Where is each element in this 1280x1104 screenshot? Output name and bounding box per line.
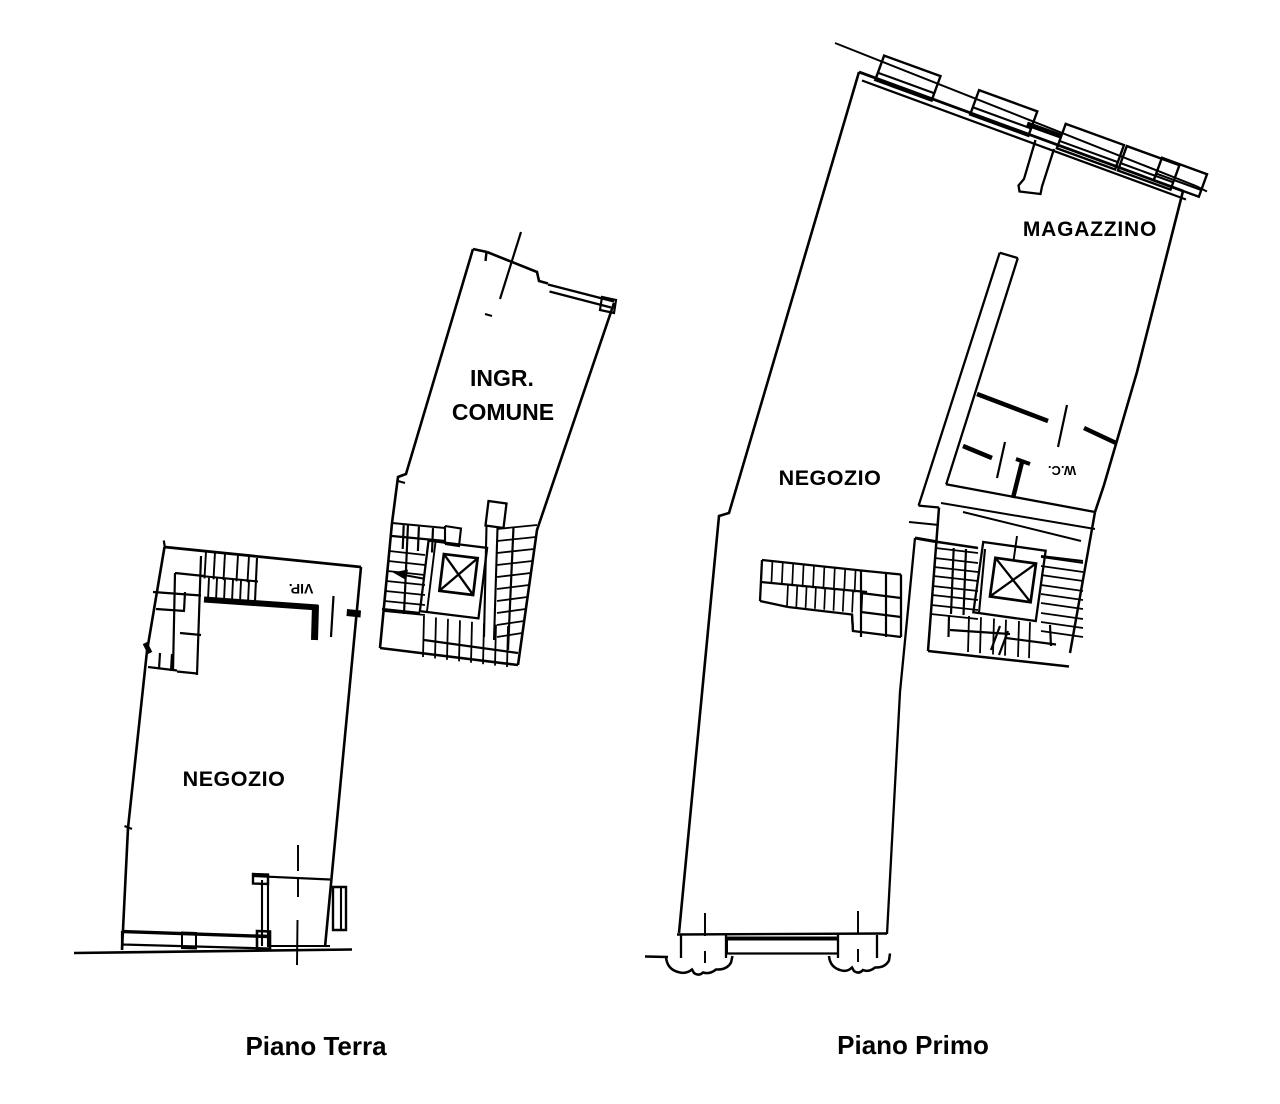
svg-text:W.C.: W.C. (1048, 463, 1076, 478)
svg-text:COMUNE: COMUNE (452, 399, 554, 425)
svg-text:INGR.: INGR. (470, 365, 534, 391)
svg-text:Piano Terra: Piano Terra (245, 1031, 387, 1061)
svg-text:VIP.: VIP. (289, 581, 314, 597)
svg-text:NEGOZIO: NEGOZIO (183, 767, 286, 791)
svg-text:MAGAZZINO: MAGAZZINO (1023, 218, 1157, 241)
svg-text:NEGOZIO: NEGOZIO (779, 466, 882, 490)
svg-text:Piano Primo: Piano Primo (837, 1030, 989, 1060)
